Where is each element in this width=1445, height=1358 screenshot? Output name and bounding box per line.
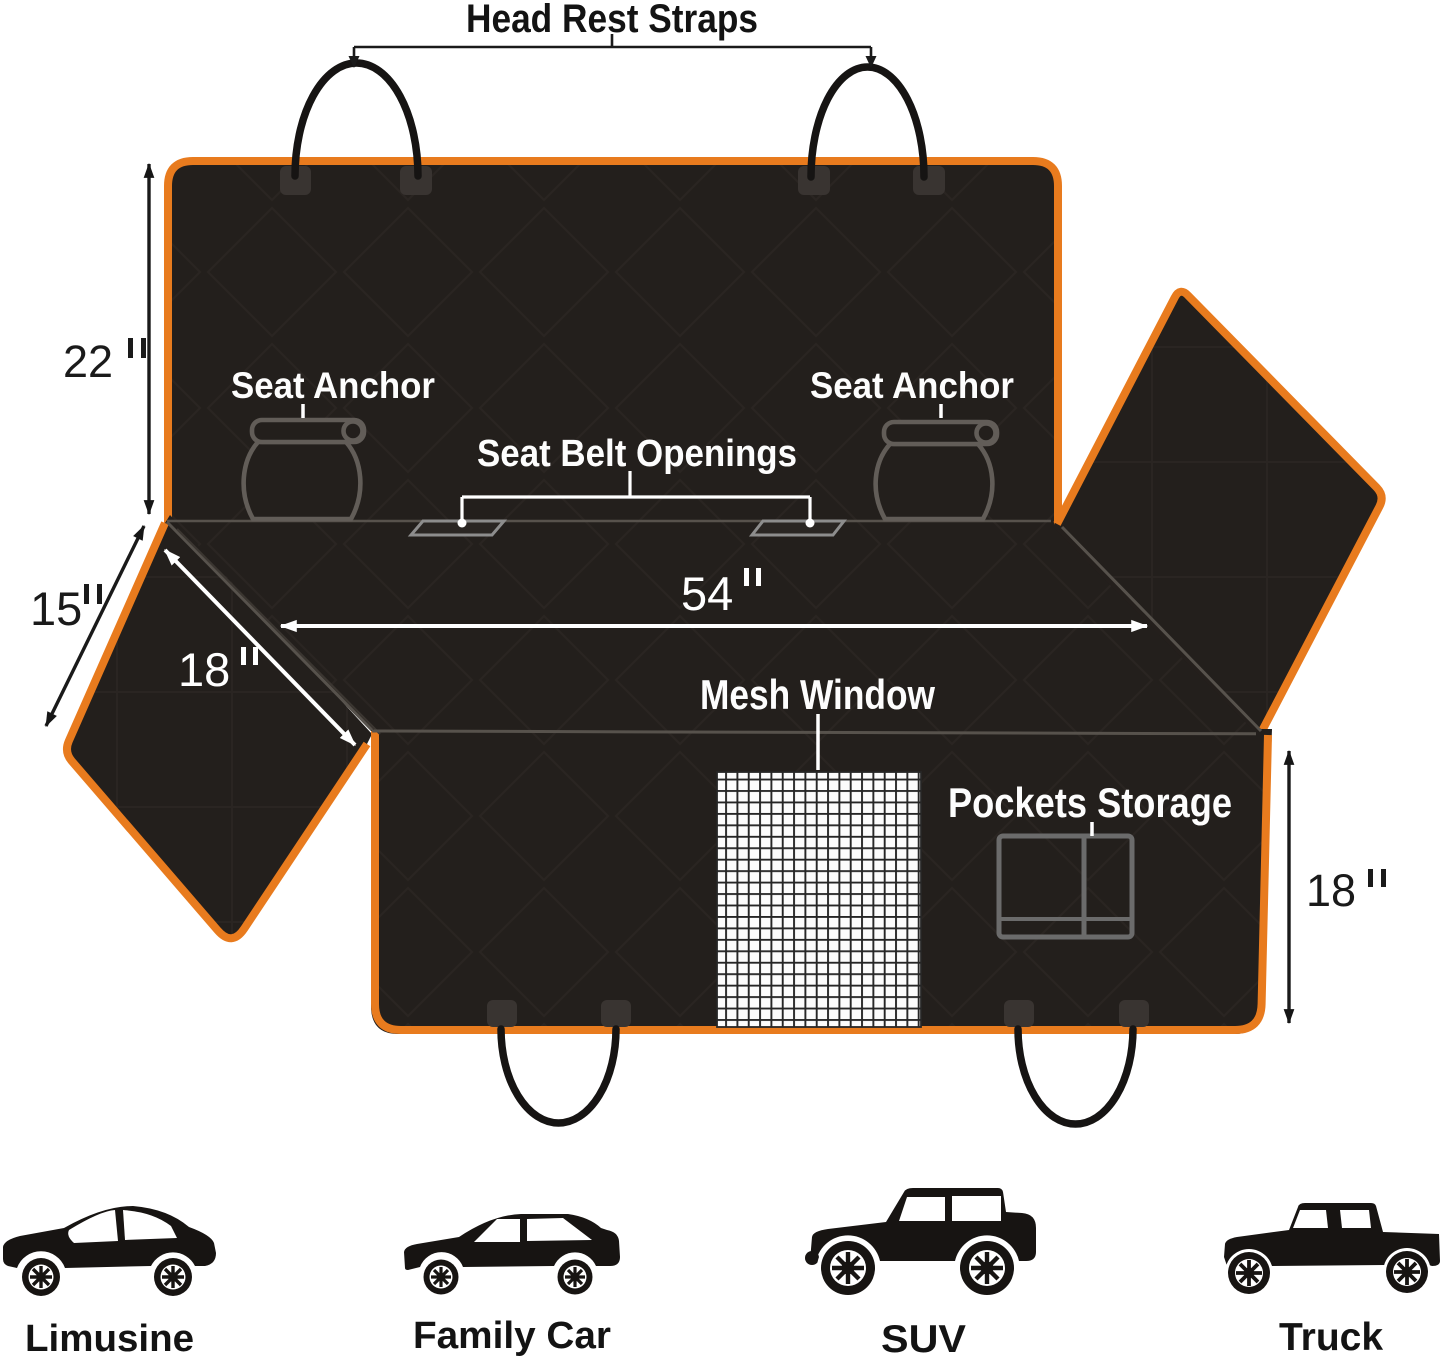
svg-text:Seat Belt Openings: Seat Belt Openings: [477, 433, 797, 475]
svg-text:18: 18: [178, 643, 230, 696]
svg-text:22: 22: [63, 336, 113, 387]
svg-text:54: 54: [681, 567, 733, 620]
svg-text:Seat Anchor: Seat Anchor: [810, 365, 1014, 406]
svg-text:Mesh Window: Mesh Window: [700, 671, 935, 718]
svg-text:SUV: SUV: [881, 1318, 966, 1358]
svg-text:Family Car: Family Car: [413, 1315, 611, 1357]
svg-text:Pockets Storage: Pockets Storage: [948, 779, 1232, 826]
svg-text:Limusine: Limusine: [25, 1318, 194, 1358]
svg-text:Truck: Truck: [1279, 1316, 1383, 1358]
svg-text:Seat Anchor: Seat Anchor: [231, 365, 435, 406]
svg-text:15: 15: [30, 582, 82, 635]
svg-text:18: 18: [1306, 865, 1356, 916]
